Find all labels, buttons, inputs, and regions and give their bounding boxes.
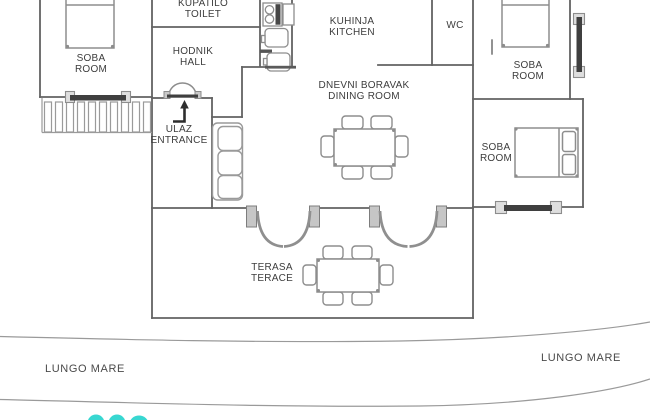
bed-top-right-room: [502, 0, 549, 47]
label-room-soba-top-right: SOBAROOM: [512, 60, 544, 82]
floor-plan: SOBAROOM KUPATILOTOILET HODNIKHALL ULAZE…: [0, 0, 650, 420]
window-top-right-room: [574, 14, 585, 78]
label-room-ulaz: ULAZENTRANCE: [150, 124, 207, 146]
window-left-room: [66, 92, 131, 103]
bathroom-fixtures: [260, 3, 296, 71]
bed-left-room: [66, 0, 114, 48]
window-mid-right-room: [496, 202, 562, 214]
label-room-soba-mid-right: SOBAROOM: [480, 142, 512, 164]
label-room-wc: WC: [446, 20, 463, 31]
entrance-arrow-icon: [173, 100, 189, 122]
entrance-door-icon: [164, 83, 201, 99]
label-room-terasa: TERASATERACE: [251, 262, 293, 284]
label-promenade-right: LUNGO MARE: [541, 353, 621, 364]
balcony-railing: [42, 98, 152, 133]
dining-set: [321, 116, 408, 179]
double-bed-mid-right-room: [514, 127, 578, 177]
terrace-french-doors: [247, 206, 447, 247]
label-room-kupatilo: KUPATILOTOILET: [178, 0, 228, 20]
logo-mark: [88, 415, 149, 420]
label-room-kuhinja: KUHINJAKITCHEN: [329, 16, 375, 38]
terrace-set: [303, 246, 393, 305]
label-room-dnevni-boravak: DNEVNI BORAVAKDINING ROOM: [319, 80, 410, 102]
label-room-hodnik: HODNIKHALL: [173, 46, 213, 68]
label-room-soba-left: SOBAROOM: [75, 53, 107, 75]
label-promenade-left: LUNGO MARE: [45, 364, 125, 375]
sofa: [213, 123, 243, 200]
